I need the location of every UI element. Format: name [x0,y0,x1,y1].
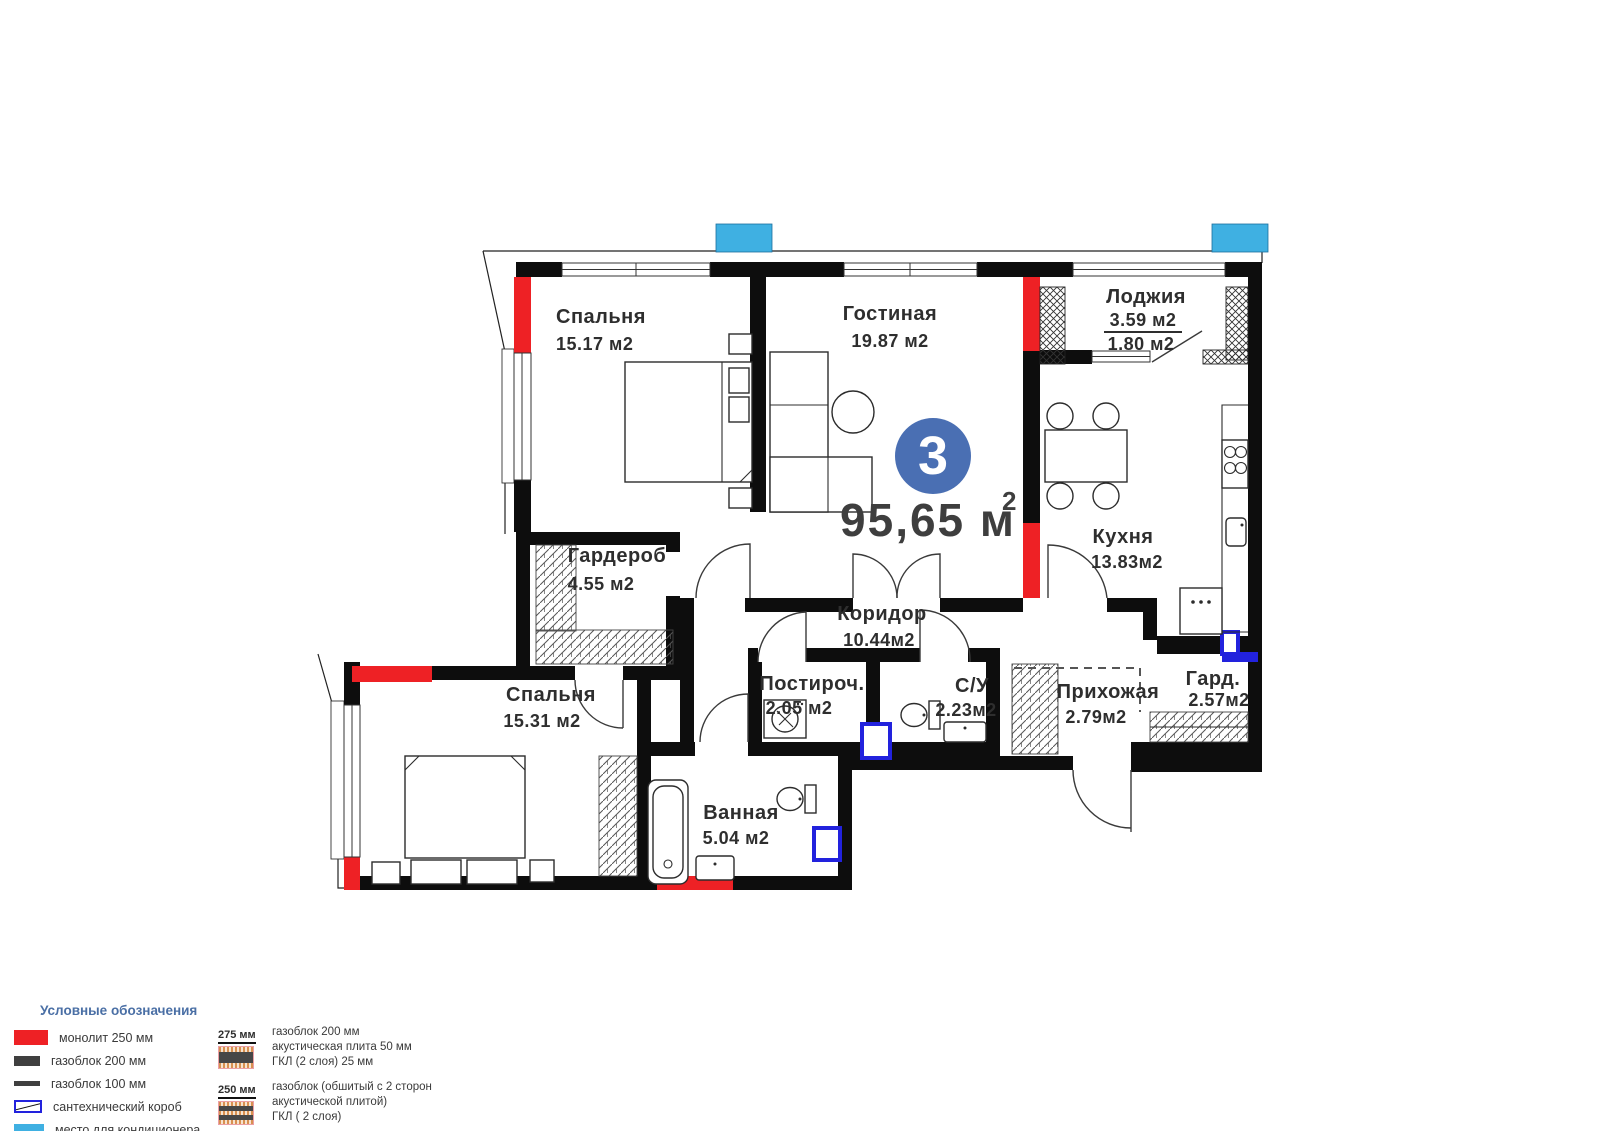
bed-2 [405,756,525,858]
svg-text:1.80 м2: 1.80 м2 [1108,334,1175,354]
monolith-swatch [14,1030,48,1045]
wall-type-size: 275 мм [218,1029,256,1044]
svg-text:10.44м2: 10.44м2 [843,630,915,650]
dining-table [1045,430,1127,482]
apartment-badge: 3 [895,418,971,494]
svg-text:15.31 м2: 15.31 м2 [503,711,580,731]
door-bedroom1 [696,544,750,598]
svg-text:4.55 м2: 4.55 м2 [568,574,635,594]
svg-text:2.57м2: 2.57м2 [1188,690,1249,710]
svg-text:Гардероб: Гардероб [568,545,667,567]
chair [1093,403,1119,429]
svg-text:Лоджия: Лоджия [1106,286,1186,308]
ac-spot-1 [716,224,772,252]
svg-text:3: 3 [918,426,948,486]
svg-text:Постироч.: Постироч. [759,673,864,695]
room-label-laundry: Постироч. 2.05 м2 [759,673,864,718]
svg-text:2.79м2: 2.79м2 [1065,707,1126,727]
room-label-bedroom1: Спальня 15.17 м2 [556,306,646,354]
legend-item-label: монолит 250 мм [59,1031,153,1045]
floor-plan: Спальня 15.17 м2 Гостиная 19.87 м2 Лоджи… [0,0,1600,1131]
wall-type-line: акустической плитой) [272,1095,432,1110]
wall-type-250-swatch [218,1101,254,1125]
svg-text:2.23м2: 2.23м2 [935,700,996,720]
legend-item-label: место для кондиционера [55,1123,200,1131]
door-living-right [897,554,940,598]
gasblock100-swatch [14,1081,40,1086]
nightstand [729,334,752,354]
wall-type-line: газоблок 200 мм [272,1025,412,1040]
gasblock200-swatch [14,1056,40,1066]
floor-plan-page: Спальня 15.17 м2 Гостиная 19.87 м2 Лоджи… [0,0,1600,1131]
sink [944,722,986,742]
kitchen-sink [1226,518,1246,546]
ac-swatch [14,1124,44,1131]
legend: Условные обозначения монолит 250 мм газо… [14,1003,484,1131]
svg-text:5.04 м2: 5.04 м2 [703,828,770,848]
wall-type-line: ГКЛ ( 2 слоя) [272,1110,432,1125]
nightstand [372,862,400,884]
nightstand [530,860,554,882]
room-label-living: Гостиная 19.87 м2 [843,303,937,351]
legend-item-label: газоблок 200 мм [51,1054,146,1068]
svg-text:Прихожая: Прихожая [1057,681,1160,703]
svg-text:Ванная: Ванная [703,802,779,824]
room-label-wardrobe1: Гардероб 4.55 м2 [568,545,667,594]
svg-text:Спальня: Спальня [556,306,646,328]
room-label-bedroom2: Спальня 15.31 м2 [503,684,596,731]
sink [696,856,734,880]
room-label-wardrobe2: Гард. 2.57м2 [1186,668,1250,710]
wall-type-275-swatch [218,1046,254,1069]
svg-text:Спальня: Спальня [506,684,596,706]
svg-text:3.59 м2: 3.59 м2 [1110,310,1177,330]
room-label-corridor: Коридор 10.44м2 [837,603,927,650]
wall-type-line: газоблок (обшитый с 2 сторон [272,1080,432,1095]
coffee-table [832,391,874,433]
legend-wall-types: 275 мм газоблок 200 мм акустическая плит… [218,1025,478,1131]
room-label-bathroom: Ванная 5.04 м2 [703,802,779,848]
chair [1047,483,1073,509]
room-label-hall: Прихожая 2.79м2 [1057,681,1160,727]
svg-text:2.05 м2: 2.05 м2 [766,698,833,718]
svg-text:19.87 м2: 19.87 м2 [851,331,928,351]
wall-type-line: акустическая плита 50 мм [272,1040,412,1055]
door-bathroom [700,694,748,742]
svg-text:Гостиная: Гостиная [843,303,937,325]
room-label-kitchen: Кухня 13.83м2 [1091,526,1163,572]
wall-type-size: 250 мм [218,1084,256,1099]
door-laundry [758,612,806,662]
door-living-left [853,554,897,598]
room-label-loggia: Лоджия 3.59 м2 1.80 м2 [1104,286,1186,354]
ac-spot-2 [1212,224,1268,252]
legend-title: Условные обозначения [40,1003,484,1018]
total-area: 95,65 м 2 [840,486,1016,546]
duct-swatch [14,1100,42,1113]
svg-text:15.17 м2: 15.17 м2 [556,334,633,354]
nightstand [729,488,752,508]
wall-type-line: ГКЛ (2 слоя) 25 мм [272,1055,412,1070]
toilet [805,785,816,813]
svg-text:Коридор: Коридор [837,603,927,625]
legend-item-label: сантехнический короб [53,1100,182,1114]
svg-text:2: 2 [1002,486,1016,516]
svg-text:Кухня: Кухня [1093,526,1154,548]
door-wc [920,610,970,662]
chair [1093,483,1119,509]
svg-text:С/У: С/У [955,675,989,697]
svg-text:13.83м2: 13.83м2 [1091,552,1163,572]
svg-text:Гард.: Гард. [1186,668,1241,690]
chair [1047,403,1073,429]
svg-text:95,65 м: 95,65 м [840,494,1016,546]
wall-type-250: 250 мм газоблок (обшитый с 2 сторон акус… [218,1080,478,1126]
kitchen-cabinet [1180,588,1222,634]
wall-type-275: 275 мм газоблок 200 мм акустическая плит… [218,1025,478,1071]
legend-item-label: газоблок 100 мм [51,1077,146,1091]
door-entry [1073,770,1131,832]
